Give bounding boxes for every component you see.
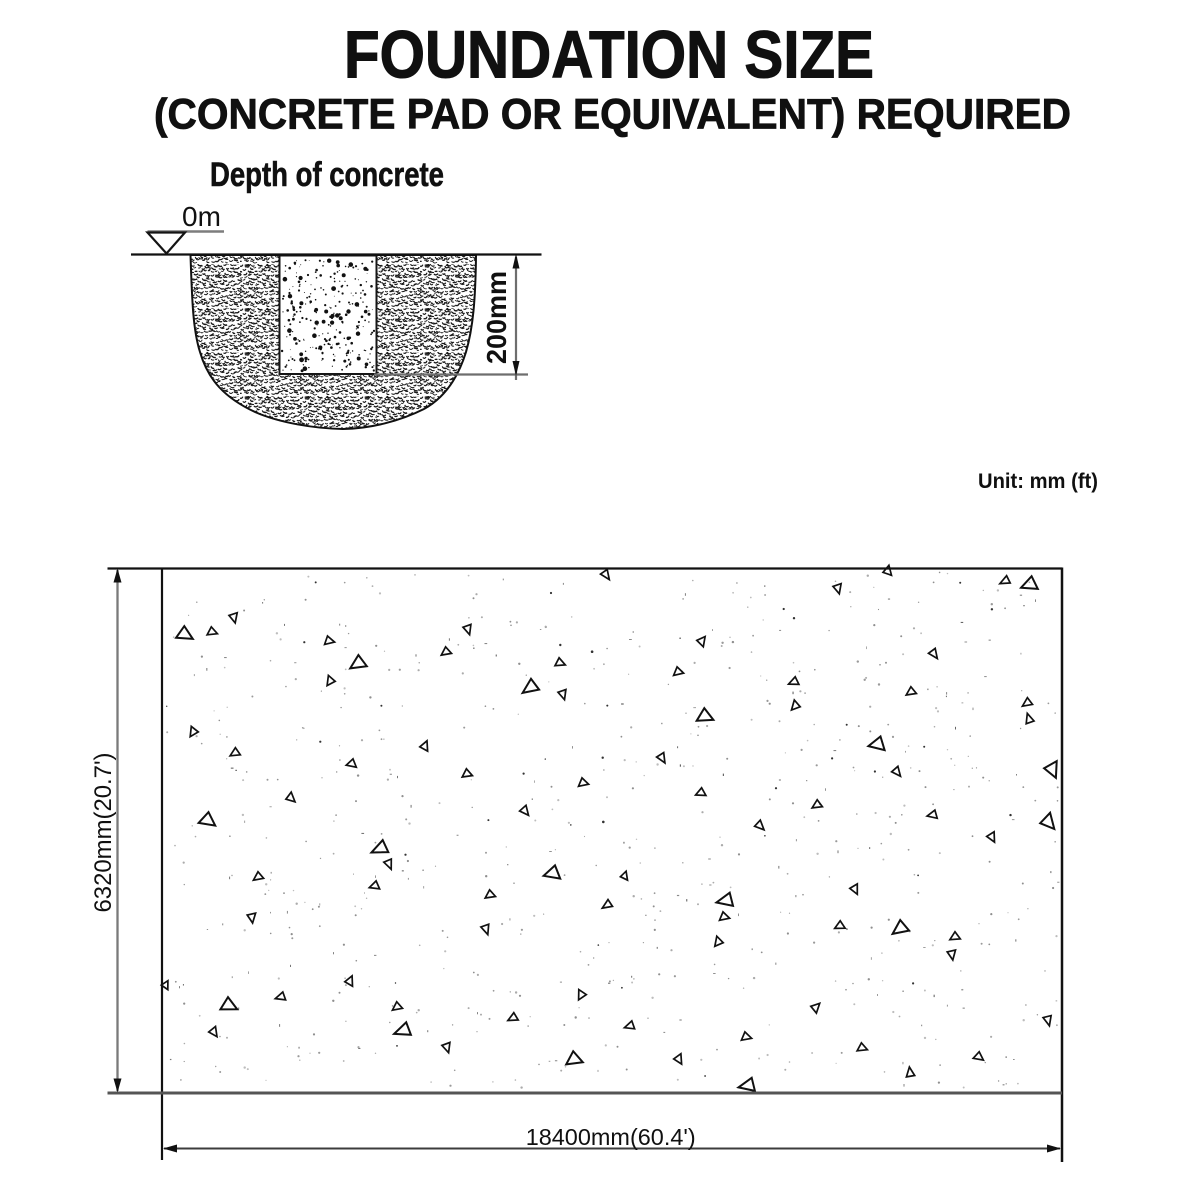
svg-text:(CONCRETE PAD OR EQUIVALENT) R: (CONCRETE PAD OR EQUIVALENT) REQUIRED xyxy=(154,91,1071,139)
svg-text:0m: 0m xyxy=(182,201,221,232)
svg-text:6320mm(20.7'): 6320mm(20.7') xyxy=(90,753,117,913)
svg-text:FOUNDATION SIZE: FOUNDATION SIZE xyxy=(344,18,874,93)
svg-text:200mm: 200mm xyxy=(481,271,512,364)
svg-text:Unit: mm (ft): Unit: mm (ft) xyxy=(978,470,1098,493)
svg-text:18400mm(60.4'): 18400mm(60.4') xyxy=(526,1124,696,1150)
svg-text:Depth of concrete: Depth of concrete xyxy=(210,156,444,194)
